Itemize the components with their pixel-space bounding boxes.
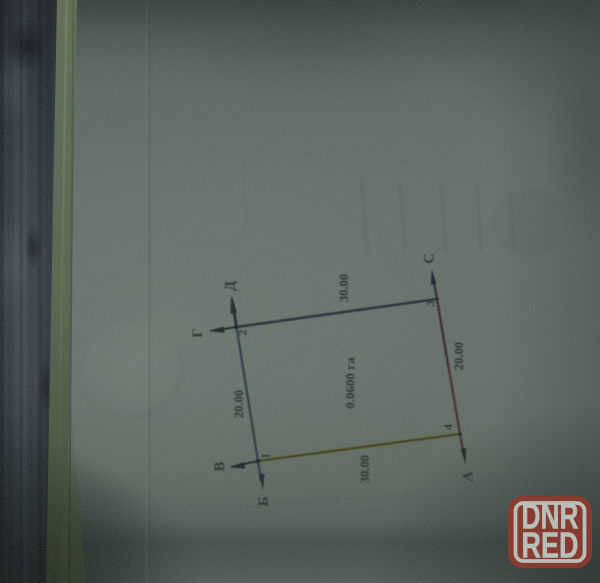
svg-text:RED: RED	[522, 525, 579, 566]
